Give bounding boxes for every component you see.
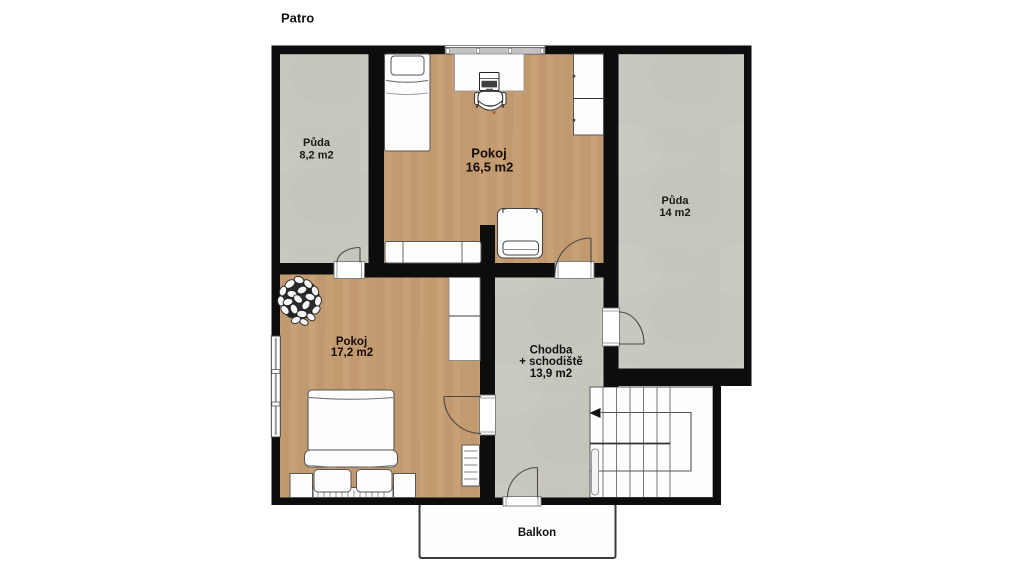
svg-text:Chodba: Chodba	[530, 344, 573, 356]
svg-text:Pokoj: Pokoj	[471, 146, 506, 161]
svg-text:8,2 m2: 8,2 m2	[299, 150, 333, 162]
svg-text:+ schodiště: + schodiště	[519, 356, 583, 368]
svg-text:16,5 m2: 16,5 m2	[466, 160, 514, 175]
svg-text:Balkon: Balkon	[518, 527, 556, 539]
svg-text:Půda: Půda	[303, 137, 331, 149]
svg-text:Půda: Půda	[662, 195, 690, 207]
svg-text:14 m2: 14 m2	[659, 207, 690, 219]
svg-text:Patro: Patro	[281, 10, 314, 25]
svg-text:17,2 m2: 17,2 m2	[331, 347, 373, 359]
svg-text:13,9 m2: 13,9 m2	[530, 368, 572, 380]
